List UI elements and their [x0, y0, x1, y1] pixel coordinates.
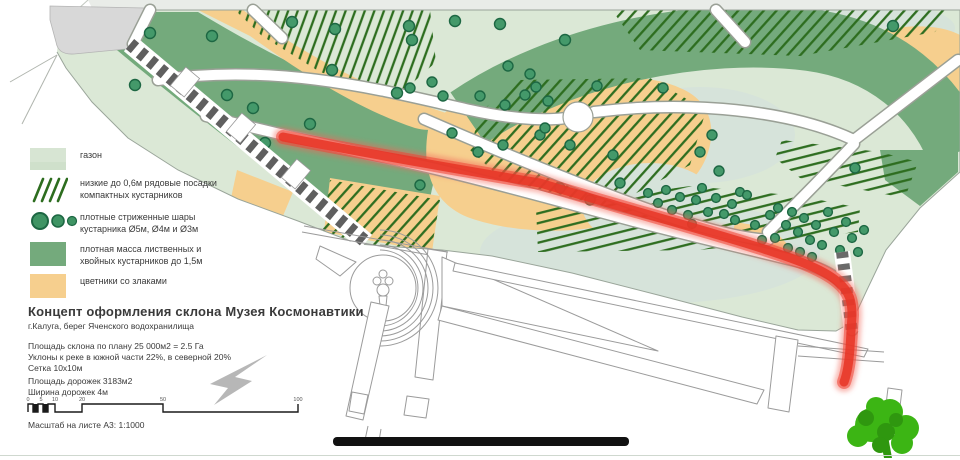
path-notes: Площадь дорожек 3183м2 Ширина дорожек 4м: [28, 376, 132, 398]
legend-label: низкие до 0,6м рядовые посадки компактны…: [80, 176, 217, 201]
lawn-swatch: [30, 148, 80, 175]
black-bar: [333, 437, 629, 446]
row-shrubs-swatch: [30, 176, 80, 208]
tree-icon: [847, 397, 919, 458]
landscape-plan-sheet: 0 5 10 20 50 100 газон низкие до 0,6м: [0, 0, 960, 460]
legend-label: плотная масса лиственных и хвойных куста…: [80, 242, 202, 267]
scale-bar: 0 5 10 20 50 100: [26, 397, 302, 412]
dense-mass-swatch: [30, 242, 80, 271]
legend-item-dense-mass: плотная масса лиственных и хвойных куста…: [30, 242, 202, 271]
flower-beds-swatch: [30, 274, 80, 303]
plan-notes: Площадь склона по плану 25 000м2 = 2.5 Г…: [28, 341, 231, 374]
legend-label: газон: [80, 148, 102, 162]
page-subtitle: г.Калуга, берег Яченского водохранилища: [28, 321, 194, 331]
legend-label: цветники со злаками: [80, 274, 167, 288]
scale-caption: Масштаб на листе А3: 1:1000: [28, 420, 144, 430]
trimmed-balls-swatch: [30, 210, 80, 237]
legend-item-flower-beds: цветники со злаками: [30, 274, 167, 303]
page-title: Концепт оформления склона Музея Космонав…: [28, 304, 364, 319]
ground-boundary-lines: [10, 55, 57, 124]
scale-tick: 100: [293, 397, 302, 403]
legend-item-lawn: газон: [30, 148, 102, 175]
scale-tick: 50: [160, 397, 166, 403]
legend-item-row-shrubs: низкие до 0,6м рядовые посадки компактны…: [30, 176, 217, 208]
legend-item-trimmed-balls: плотные стриженные шары кустарника Ø5м, …: [30, 210, 198, 237]
legend-label: плотные стриженные шары кустарника Ø5м, …: [80, 210, 198, 235]
round-plaza: [563, 102, 593, 132]
